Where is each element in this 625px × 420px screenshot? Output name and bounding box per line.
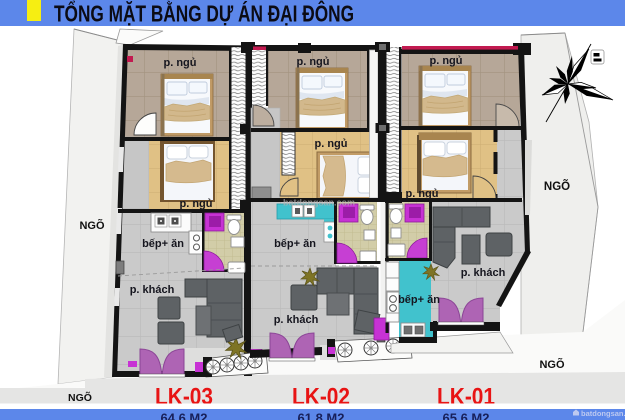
svg-text:batdongsan.com: batdongsan.com [581, 409, 625, 418]
svg-text:NGÕ: NGÕ [544, 180, 570, 193]
svg-text:p. khách: p. khách [274, 314, 319, 326]
svg-text:65.6 M2: 65.6 M2 [443, 411, 490, 420]
svg-text:NGÕ: NGÕ [79, 219, 105, 232]
svg-text:bếp+ ăn: bếp+ ăn [274, 238, 316, 250]
svg-text:p. ngủ: p. ngủ [164, 57, 197, 69]
svg-text:p. ngủ: p. ngủ [406, 188, 439, 200]
svg-text:TỔNG MẶT BẰNG DỰ ÁN ĐẠI ĐÔNG: TỔNG MẶT BẰNG DỰ ÁN ĐẠI ĐÔNG [54, 0, 354, 27]
svg-text:bếp+ ăn: bếp+ ăn [142, 238, 184, 250]
svg-text:p. ngủ: p. ngủ [430, 55, 463, 67]
svg-text:bếp+ ăn: bếp+ ăn [398, 294, 440, 306]
svg-text:p. khách: p. khách [130, 284, 175, 296]
svg-text:64.6 M2: 64.6 M2 [161, 411, 208, 420]
svg-text:61.8 M2: 61.8 M2 [298, 411, 345, 420]
svg-text:p. ngủ: p. ngủ [297, 56, 330, 68]
svg-text:NGÕ: NGÕ [68, 391, 92, 404]
svg-text:batdongsan.com: batdongsan.com [283, 198, 355, 208]
svg-text:p. ngủ: p. ngủ [315, 138, 348, 150]
svg-text:p. ngủ: p. ngủ [180, 198, 213, 210]
svg-text:NGÕ: NGÕ [539, 358, 565, 371]
svg-text:p. khách: p. khách [461, 267, 506, 279]
